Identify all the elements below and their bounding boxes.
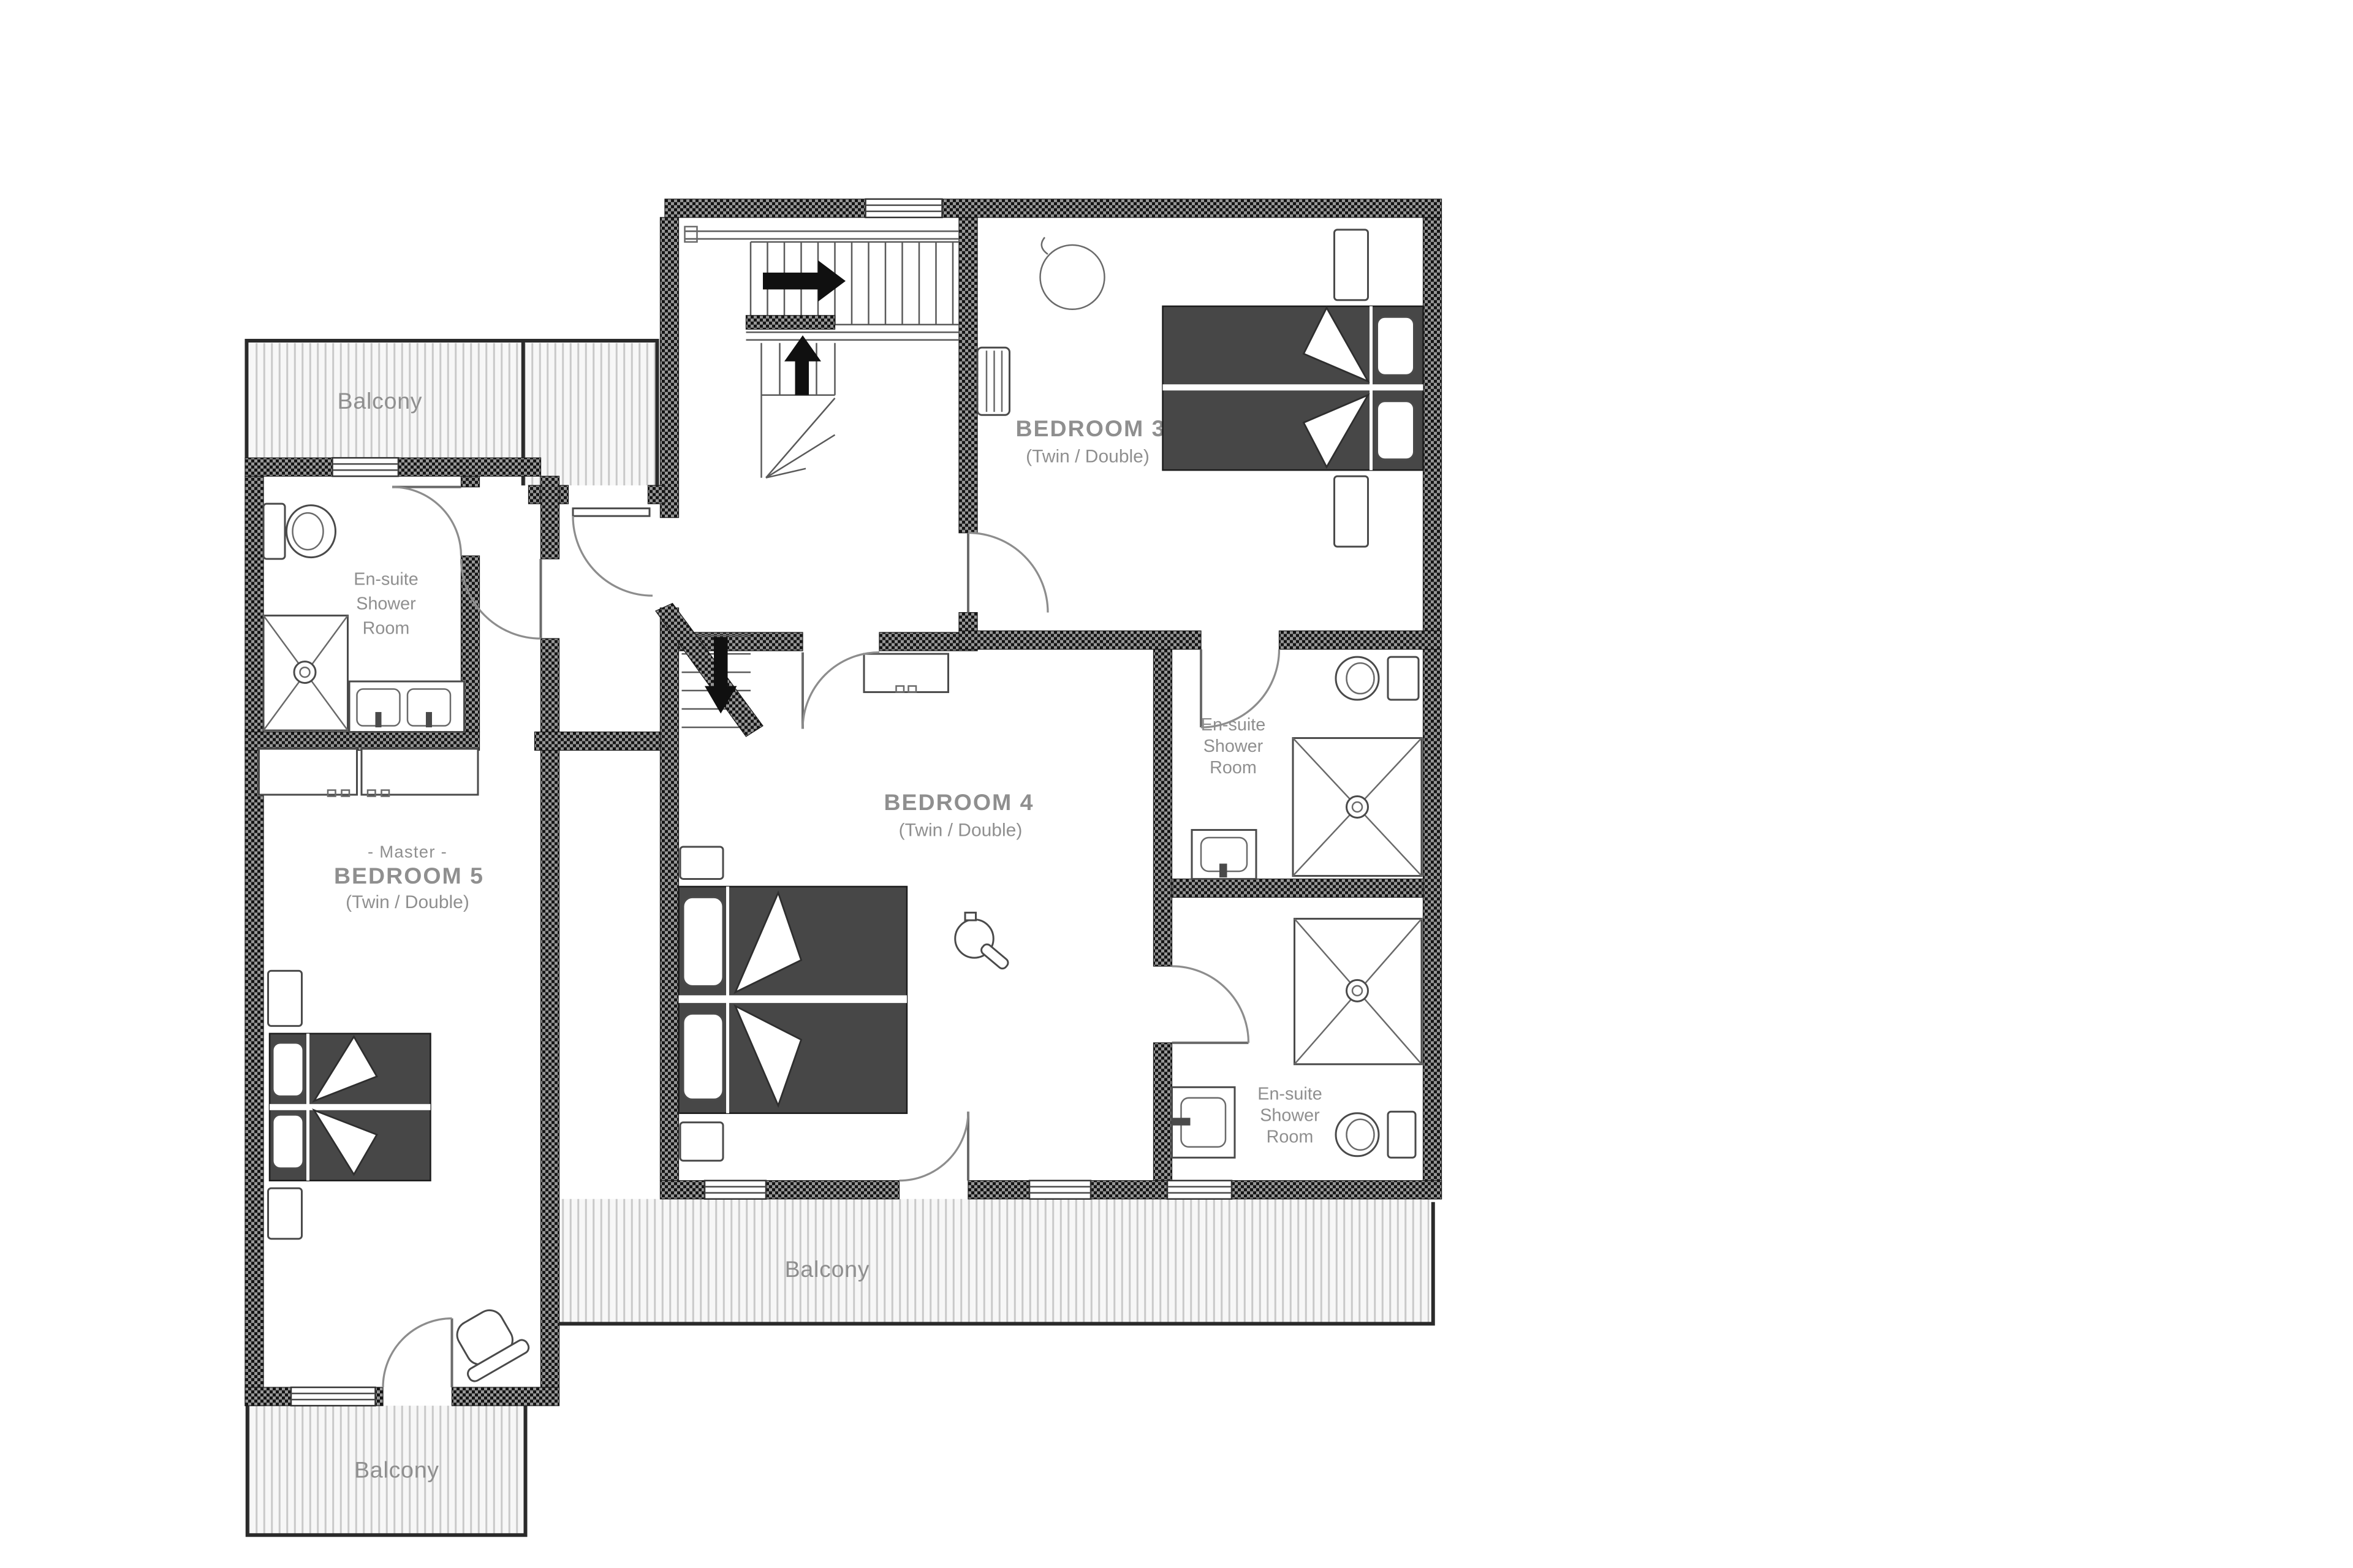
ensuite-label-line: En-suite xyxy=(354,570,418,589)
double-sink xyxy=(349,681,464,732)
room-name: BEDROOM 4 xyxy=(884,789,1034,815)
radiator xyxy=(977,347,1010,415)
room-type: (Twin / Double) xyxy=(899,820,1023,840)
room-bedroom3: BEDROOM 3 (Twin / Double) xyxy=(968,230,1423,613)
balcony-label: Balcony xyxy=(785,1256,870,1282)
window-bedroom5 xyxy=(291,1387,376,1406)
pillow xyxy=(1377,317,1414,375)
pillow xyxy=(683,1013,723,1099)
bed-bedroom3 xyxy=(1163,306,1423,470)
room-bedroom4: BEDROOM 4 (Twin / Double) xyxy=(679,653,1034,1181)
window-top-wall xyxy=(866,199,942,218)
balcony-floor xyxy=(524,343,657,485)
room-ensuite-bedroom5: En-suite Shower Room xyxy=(263,487,464,732)
sink xyxy=(1192,830,1256,879)
window-ensuite5 xyxy=(333,458,399,476)
room-bedroom5: - Master - BEDROOM 5 (Twin / Double) xyxy=(259,749,531,1387)
pillow xyxy=(273,1043,303,1096)
room-ensuite-bedroom4: En-suite Shower Room xyxy=(1172,918,1422,1157)
room-type: (Twin / Double) xyxy=(346,892,469,912)
pillow xyxy=(273,1115,303,1168)
pillow xyxy=(683,897,723,986)
bedside-table xyxy=(1335,230,1368,300)
bedside-table xyxy=(680,847,723,879)
ensuite-label-line: En-suite xyxy=(1257,1084,1322,1104)
bed-bedroom5 xyxy=(270,1034,431,1181)
ensuite-label-line: En-suite xyxy=(1201,715,1265,735)
ensuite-label-line: Room xyxy=(1210,758,1257,778)
bedside-table xyxy=(268,1188,302,1238)
door-leaf xyxy=(573,509,650,516)
balcony-label: Balcony xyxy=(338,388,423,414)
shower xyxy=(263,616,348,730)
armchair-round xyxy=(955,912,1010,970)
room-prefix: - Master - xyxy=(368,842,447,861)
shower xyxy=(1295,918,1422,1064)
room-name: BEDROOM 5 xyxy=(334,863,484,888)
door-ensuite5 xyxy=(392,487,461,556)
ceiling-feature xyxy=(1040,237,1105,309)
door-bedroom4-balcony xyxy=(900,1112,969,1180)
door-balcony-top xyxy=(573,509,653,596)
room-name: BEDROOM 3 xyxy=(1015,415,1165,441)
window-bedroom4-left xyxy=(705,1181,766,1199)
bedside-table xyxy=(680,1123,723,1161)
toilet xyxy=(263,504,336,559)
room-ensuite-bedroom3: En-suite Shower Room xyxy=(1192,650,1422,879)
door-bedroom5-balcony xyxy=(383,1319,452,1387)
stair-arrow-right-icon xyxy=(763,260,846,301)
door-ensuite4 xyxy=(1172,966,1249,1043)
wardrobe-bedroom4 xyxy=(864,654,949,692)
balcony-bottom-left: Balcony xyxy=(248,1406,526,1535)
ensuite-label-line: Room xyxy=(1267,1127,1314,1146)
shower xyxy=(1293,738,1422,876)
sink xyxy=(1172,1087,1235,1157)
armchair xyxy=(444,1301,531,1384)
toilet xyxy=(1336,657,1419,700)
floor-plan: Balcony Balcony Balcony xyxy=(0,0,2353,1568)
ensuite-label-line: Shower xyxy=(356,594,416,614)
stair-arrow-up-icon xyxy=(784,335,821,395)
bed-bedroom4 xyxy=(679,887,907,1113)
room-type: (Twin / Double) xyxy=(1026,447,1150,467)
bedside-table xyxy=(1335,476,1368,547)
bedside-table xyxy=(268,971,302,1026)
window-ensuite4 xyxy=(1167,1181,1232,1199)
balcony-floor xyxy=(559,1199,1430,1323)
toilet xyxy=(1336,1112,1415,1157)
balcony-bottom-middle: Balcony xyxy=(547,1199,1433,1324)
pillow xyxy=(1377,401,1414,460)
window-bedroom4-right xyxy=(1029,1181,1091,1199)
ensuite-label-line: Room xyxy=(363,619,410,638)
door-bedroom3 xyxy=(968,533,1048,613)
stair-mid-wall xyxy=(746,316,835,329)
ensuite-label-line: Shower xyxy=(1260,1105,1320,1125)
ensuite-label-line: Shower xyxy=(1203,737,1264,756)
floor-plan-page: Balcony Balcony Balcony xyxy=(0,0,2353,1568)
wardrobe-bedroom5 xyxy=(259,749,479,796)
balcony-label: Balcony xyxy=(354,1457,439,1483)
